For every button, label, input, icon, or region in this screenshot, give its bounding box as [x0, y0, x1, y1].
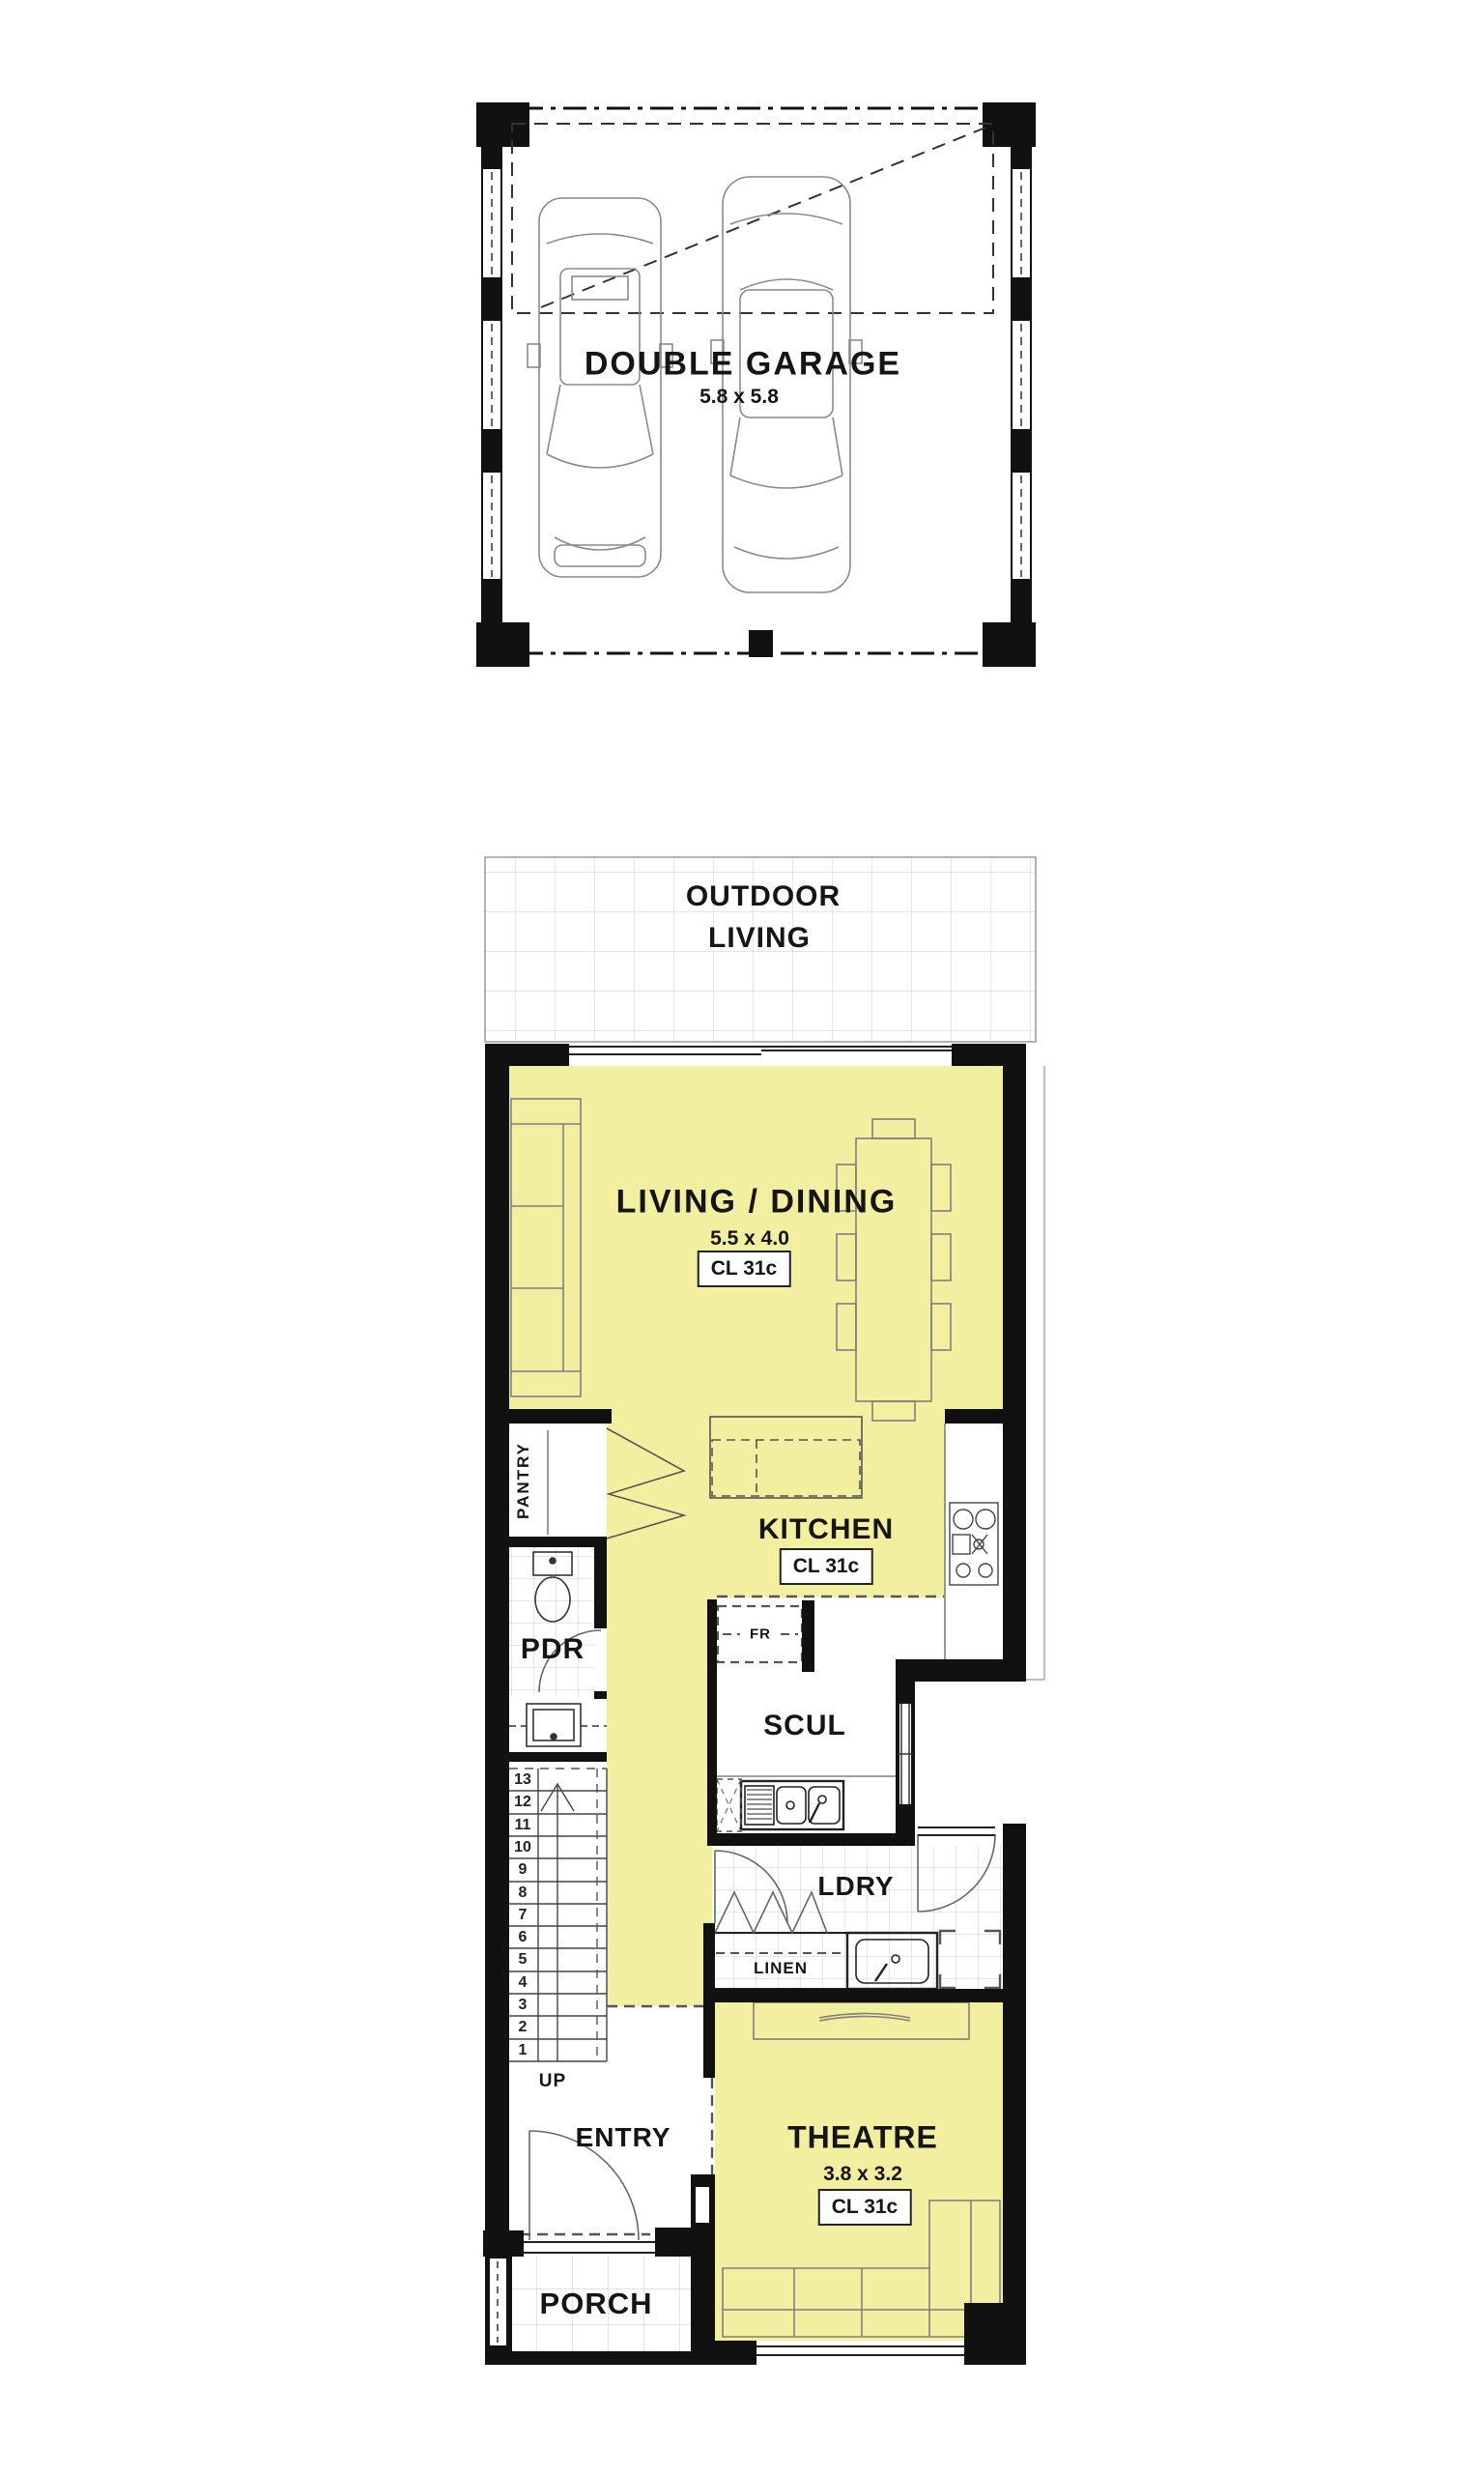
- stair-tread-number: 7: [519, 1907, 528, 1924]
- stair-tread-number: 4: [519, 1974, 528, 1992]
- pantry-label: PANTRY: [514, 1442, 533, 1519]
- stair-tread-number: 1: [519, 2042, 528, 2059]
- theatre-window: [756, 2346, 964, 2355]
- stairs-up-label: UP: [539, 2071, 566, 2092]
- stair-tread-number: 2: [519, 2019, 528, 2036]
- porch-label: PORCH: [540, 2287, 653, 2321]
- kitchen-ceiling-badge: CL 31c: [780, 1548, 873, 1585]
- stair-tread-number: 13: [514, 1771, 531, 1789]
- kitchen-label: KITCHEN: [758, 1513, 894, 1546]
- fridge-label: FR: [750, 1626, 771, 1643]
- cooktop: [950, 1503, 998, 1585]
- garage-label: DOUBLE GARAGE: [585, 346, 901, 384]
- theatre-label: THEATRE: [787, 2120, 938, 2156]
- stair-tread-number: 10: [514, 1839, 531, 1856]
- front-door-sill: [524, 2242, 655, 2253]
- living-dining-dim: 5.5 x 4.0: [710, 1227, 789, 1251]
- floor-fills: [485, 857, 1036, 2351]
- car-1: [528, 198, 672, 577]
- stair-tread-number: 12: [514, 1794, 531, 1811]
- stair-tread-number: 5: [519, 1951, 528, 1969]
- theatre-dim: 3.8 x 3.2: [823, 2163, 902, 2186]
- linen-label: LINEN: [754, 1959, 808, 1978]
- living-dining-label: LIVING / DINING: [616, 1184, 898, 1222]
- scullery-label: SCUL: [763, 1710, 846, 1742]
- living-ceiling-badge: CL 31c: [698, 1251, 791, 1287]
- stair-tread-number: 11: [515, 1817, 531, 1834]
- outdoor-living-label-1: OUTDOOR: [686, 880, 841, 913]
- entry-label: ENTRY: [576, 2122, 671, 2153]
- stair-tread-number: 6: [519, 1929, 528, 1946]
- theatre-ceiling-badge: CL 31c: [818, 2189, 912, 2226]
- floor-plan: DOUBLE GARAGE 5.8 x 5.8 OUTDOOR LIVING L…: [0, 0, 1484, 2474]
- scullery-sink: [717, 1776, 896, 1831]
- laundry-label: LDRY: [817, 1871, 894, 1902]
- garage-dim: 5.8 x 5.8: [699, 386, 779, 409]
- pdr-label: PDR: [521, 1633, 585, 1666]
- vanity-basin: [509, 1704, 607, 1746]
- stair-tread-number: 9: [519, 1861, 528, 1879]
- stair-tread-number: 8: [519, 1884, 528, 1902]
- stair-tread-number: 3: [519, 1997, 528, 2014]
- outdoor-living-label-2: LIVING: [708, 922, 811, 955]
- car-2: [711, 177, 862, 592]
